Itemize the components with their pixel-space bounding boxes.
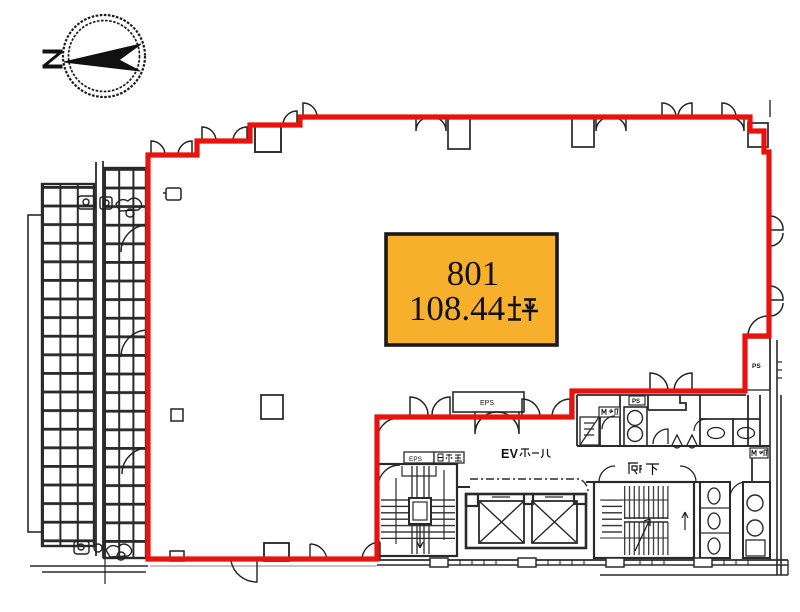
svg-text:PS: PS xyxy=(632,399,640,405)
svg-text:801: 801 xyxy=(447,254,500,293)
svg-text:EV: EV xyxy=(501,447,519,461)
svg-text:PS: PS xyxy=(752,363,761,370)
svg-text:108.44: 108.44 xyxy=(409,289,505,328)
svg-text:EPS: EPS xyxy=(480,400,494,407)
svg-text:EPS: EPS xyxy=(409,456,423,463)
